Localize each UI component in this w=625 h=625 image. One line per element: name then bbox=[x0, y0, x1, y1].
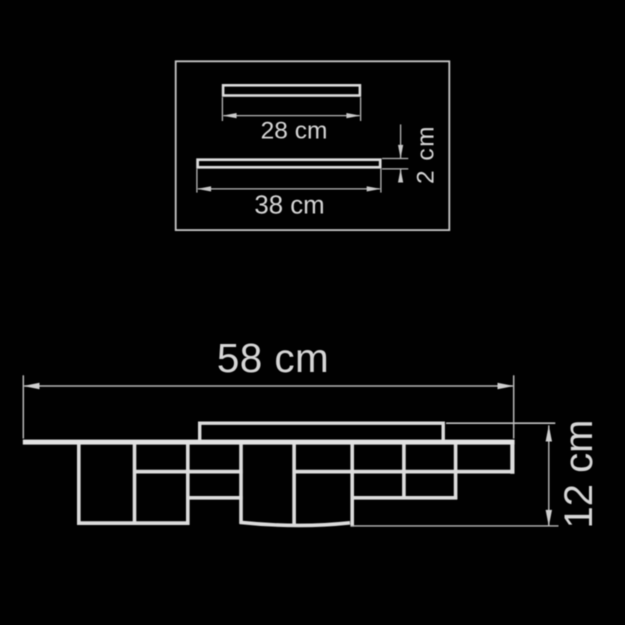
svg-text:58 cm: 58 cm bbox=[217, 335, 329, 381]
svg-text:12 cm: 12 cm bbox=[557, 420, 601, 529]
svg-text:38 cm: 38 cm bbox=[254, 191, 324, 219]
svg-text:28 cm: 28 cm bbox=[261, 118, 328, 145]
svg-text:2 cm: 2 cm bbox=[412, 125, 439, 184]
